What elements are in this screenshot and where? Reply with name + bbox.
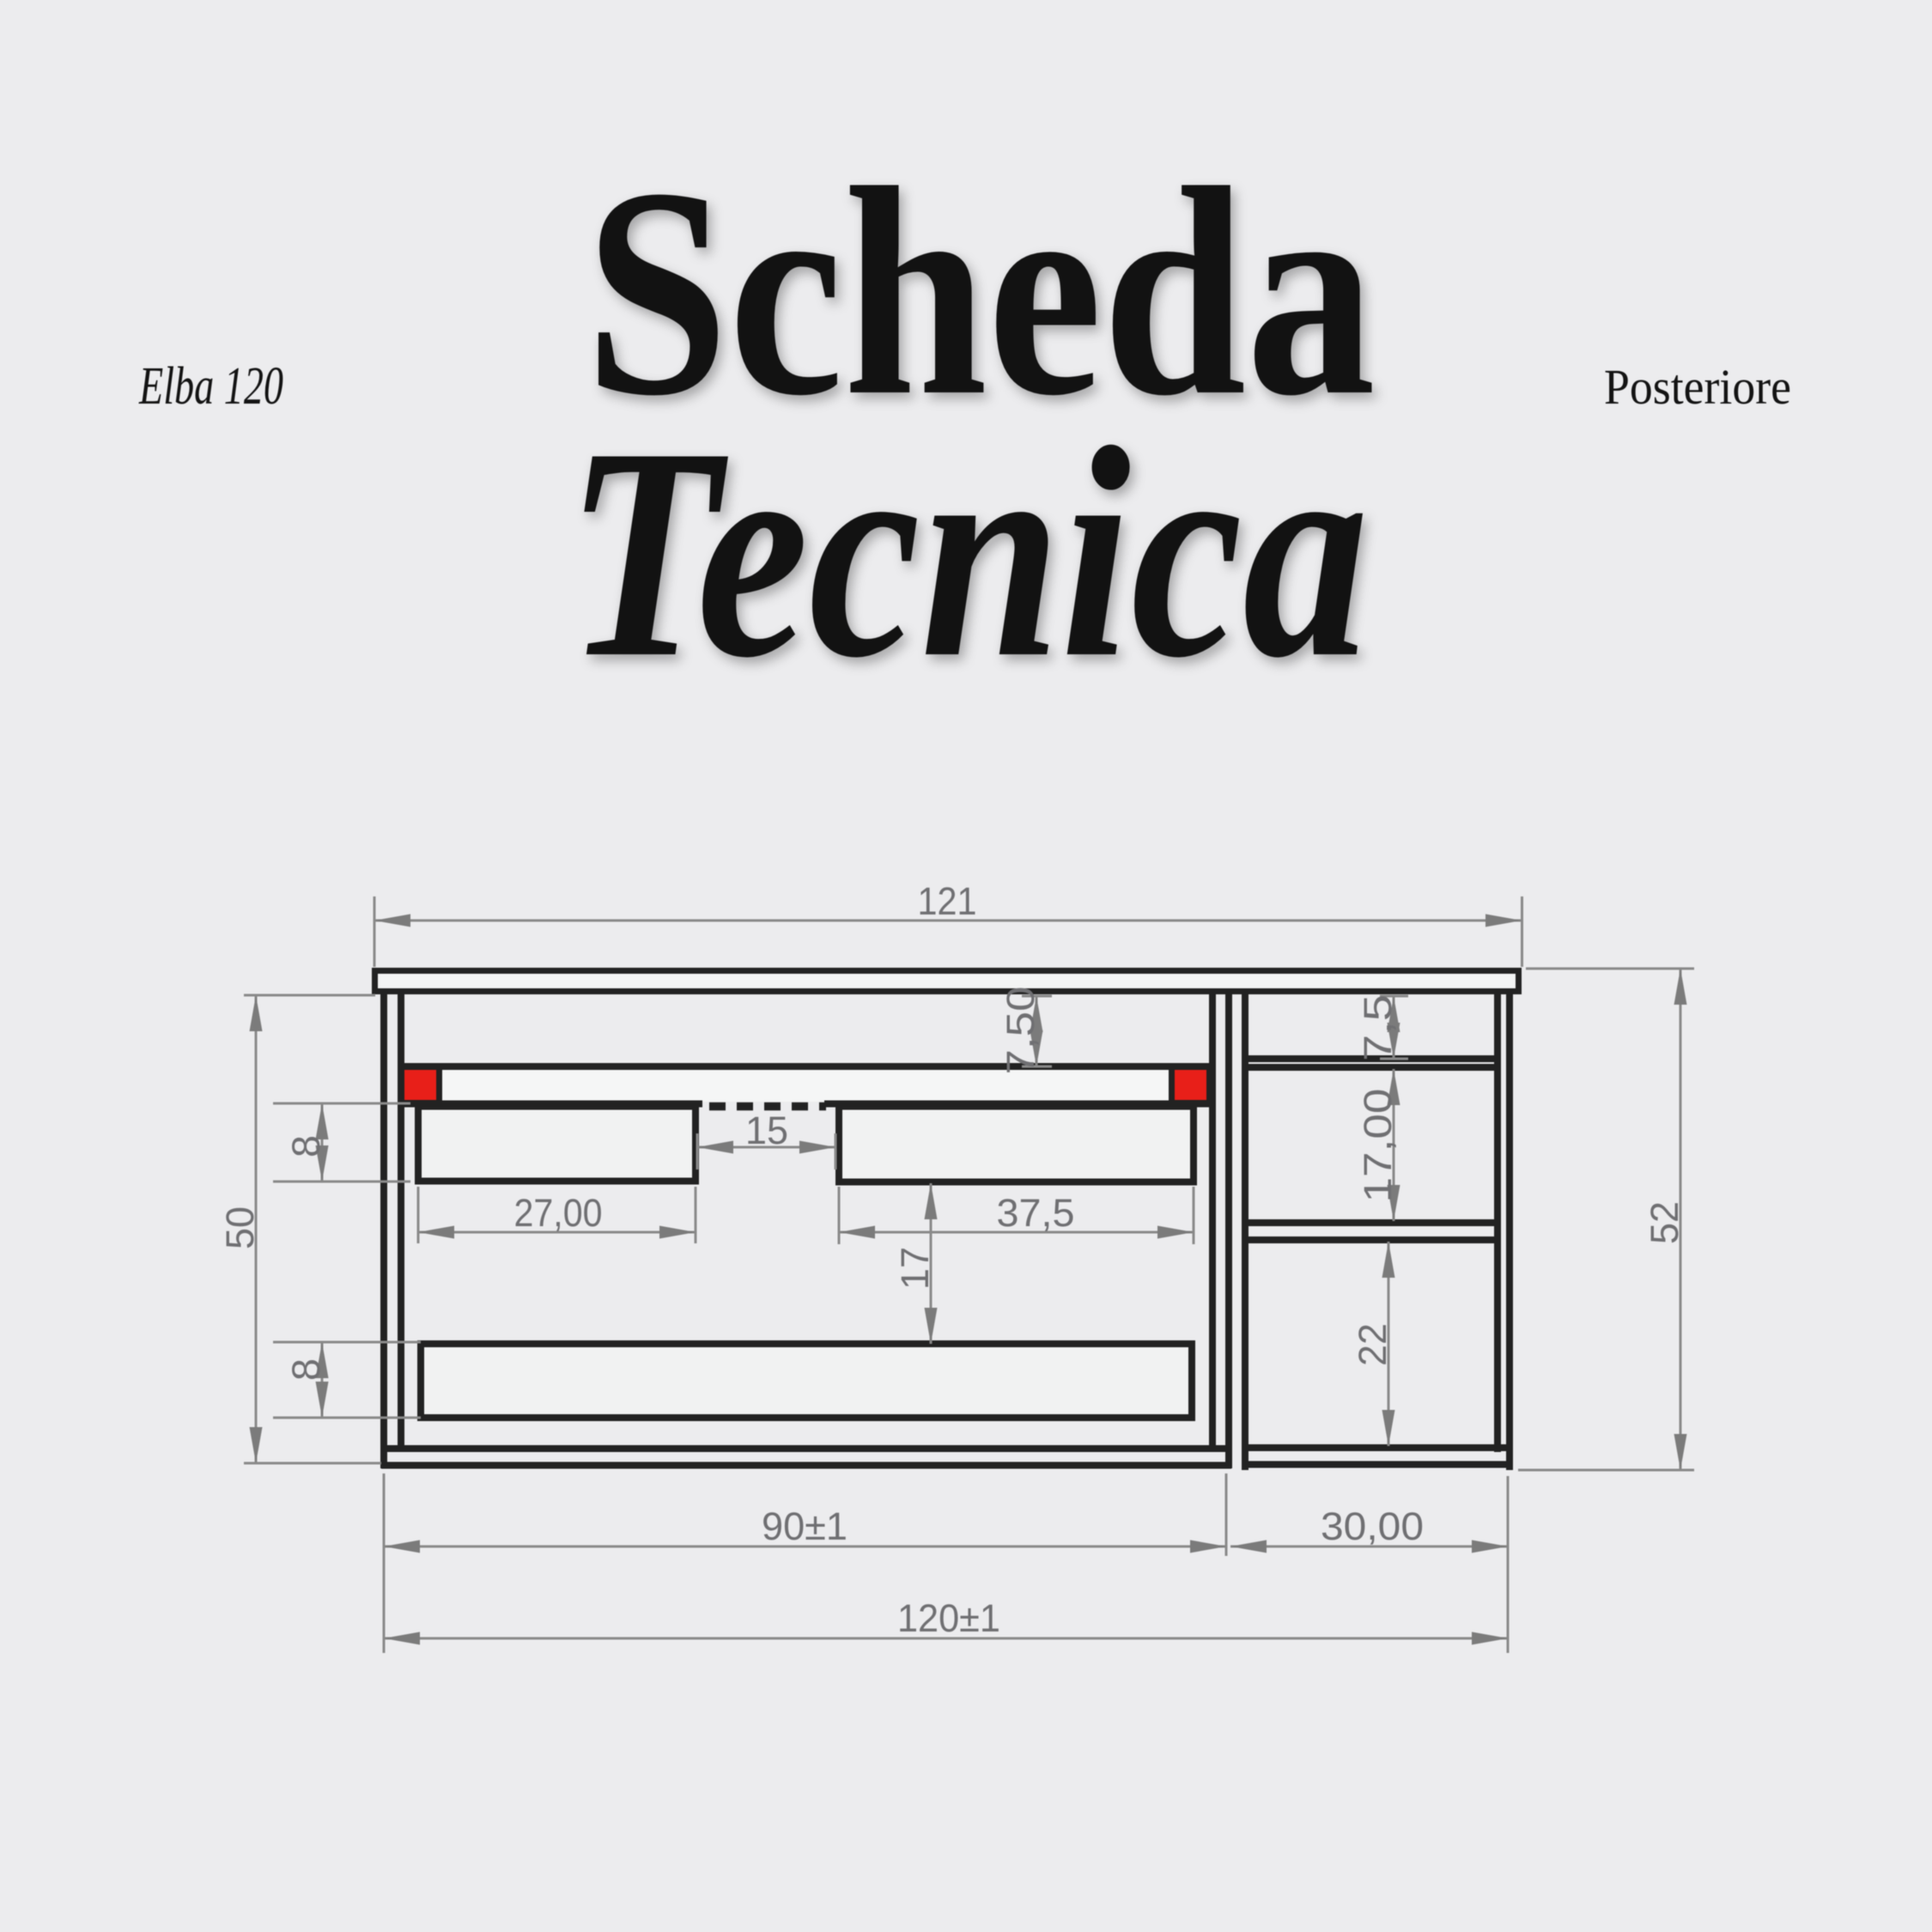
svg-text:Elba 120: Elba 120 [138,357,283,416]
svg-text:90±1: 90±1 [762,1504,848,1548]
svg-text:17,00: 17,00 [1356,1089,1400,1203]
svg-text:120±1: 120±1 [897,1596,1000,1640]
svg-text:8: 8 [284,1358,328,1381]
svg-text:50: 50 [218,1206,262,1249]
svg-text:52: 52 [1643,1201,1686,1244]
svg-text:22: 22 [1351,1323,1394,1366]
svg-text:7,50: 7,50 [999,987,1042,1075]
svg-text:27,00: 27,00 [514,1191,603,1235]
svg-text:121: 121 [918,879,977,923]
svg-text:8: 8 [284,1135,328,1157]
svg-text:Tecnica: Tecnica [566,386,1369,720]
svg-text:15: 15 [745,1109,788,1152]
svg-text:Posteriore: Posteriore [1604,359,1791,415]
svg-text:30,00: 30,00 [1321,1504,1424,1548]
svg-text:7,5: 7,5 [1356,994,1400,1061]
svg-text:37,5: 37,5 [997,1191,1075,1235]
svg-text:17: 17 [893,1247,937,1290]
